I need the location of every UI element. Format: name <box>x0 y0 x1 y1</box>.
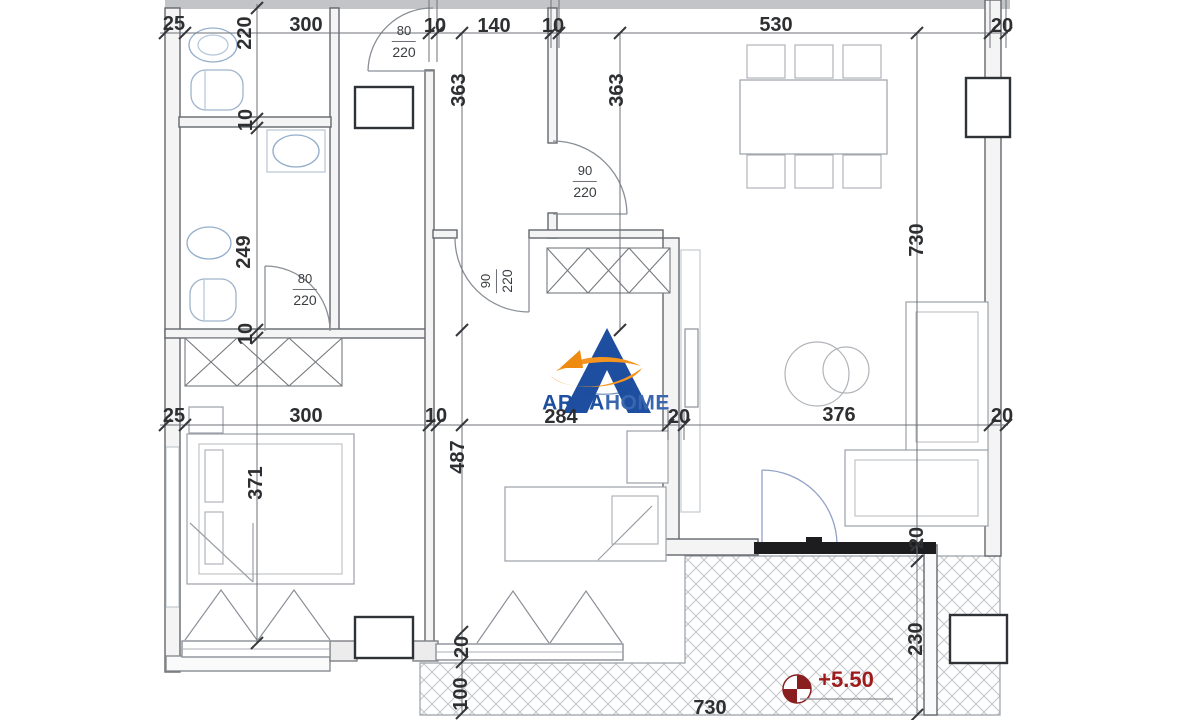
logo-primary: ARKA <box>542 392 605 415</box>
dimension-label: 530 <box>759 15 792 35</box>
dimension-label: 730 <box>907 223 927 256</box>
dimension-label: 371 <box>246 466 266 499</box>
dimension-label: 300 <box>289 15 322 35</box>
dimension-label: 20 <box>991 406 1013 426</box>
dimension-label: 730 <box>693 698 726 718</box>
dimension-label: 100 <box>451 677 471 710</box>
dimension-label: 10 <box>542 16 564 36</box>
dimension-label: 10 <box>236 109 256 131</box>
dimension-label: 363 <box>607 73 627 106</box>
dimension-label: 20 <box>668 407 690 427</box>
dimension-label: 20 <box>907 527 927 549</box>
dimension-label: 20 <box>452 636 472 658</box>
floorplan-canvas <box>0 0 1200 720</box>
dimension-label: 230 <box>906 622 926 655</box>
dimension-label: 10 <box>424 16 446 36</box>
arka-home-logo-text: ARKAHOME <box>542 393 670 414</box>
floorplan: 2530010140105302022010249103633637303714… <box>0 0 1200 720</box>
dimension-label: 10 <box>425 406 447 426</box>
dimension-label: 220 <box>235 16 255 49</box>
dimension-label: 249 <box>234 235 254 268</box>
dimension-label: 140 <box>477 16 510 36</box>
dimension-label: 25 <box>163 406 185 426</box>
dimension-label: 376 <box>822 405 855 425</box>
door-size-label: 80220 <box>293 272 317 308</box>
dimension-label: 487 <box>448 440 468 473</box>
dimension-label: 25 <box>163 14 185 34</box>
door-size-label: 90220 <box>573 164 597 200</box>
dimension-label: 20 <box>991 16 1013 36</box>
dimension-label: 10 <box>236 323 256 345</box>
door-size-label: 80220 <box>392 24 416 60</box>
door-size-label: 90220 <box>479 269 515 293</box>
dimension-label: 363 <box>449 73 469 106</box>
logo-secondary: HOME <box>605 392 670 415</box>
level-label: +5.50 <box>818 669 874 691</box>
dimension-label: 300 <box>289 406 322 426</box>
